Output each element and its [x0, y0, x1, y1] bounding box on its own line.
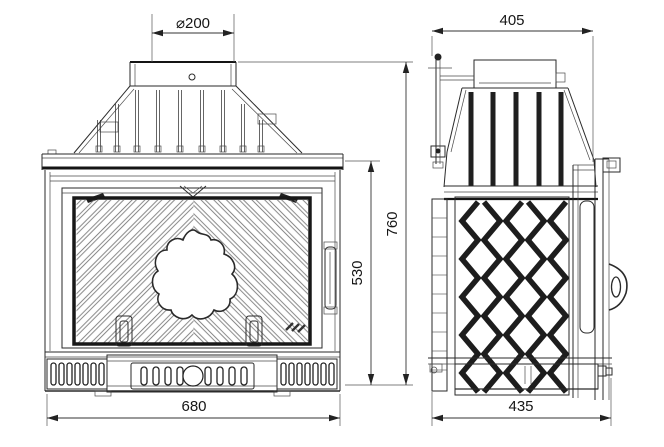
dim-label-530: 530 — [349, 260, 366, 285]
hood-fins-side — [471, 92, 561, 186]
collar-bolt-hole — [189, 74, 195, 80]
dim-height-530: 530 — [345, 161, 380, 385]
dim-label-680: 680 — [181, 398, 206, 415]
flue-collar-front — [130, 62, 236, 86]
dim-label-405: 405 — [499, 12, 524, 29]
dim-label-435: 435 — [508, 398, 533, 415]
air-control-knob — [183, 366, 203, 386]
door-latch-side — [603, 158, 620, 172]
hood-side — [444, 88, 598, 199]
dim-flue-diameter: ⌀200 — [152, 14, 234, 62]
dim-label-760: 760 — [384, 211, 401, 236]
hood-front — [74, 86, 302, 153]
technical-drawing-canvas: ⌀200 405 760 530 680 435 — [0, 0, 664, 447]
flue-collar-side — [474, 60, 565, 88]
side-view — [428, 54, 627, 401]
hood-step-right — [258, 114, 276, 124]
pedestal-side — [455, 364, 598, 389]
vent-grille-right — [277, 359, 337, 389]
vent-grille-left — [47, 359, 107, 389]
base-side — [428, 358, 612, 389]
damper-knob — [435, 54, 442, 61]
hood-ribs — [96, 90, 264, 152]
hinge-column-segments — [432, 218, 447, 370]
door-handle-side — [609, 264, 627, 310]
dim-label-flue-diameter: ⌀200 — [176, 15, 210, 32]
door-edge-panel — [580, 201, 594, 333]
control-panel — [107, 355, 277, 392]
front-view — [42, 62, 343, 396]
firebox-front — [45, 170, 340, 352]
dim-depth-435: 435 — [432, 378, 611, 426]
top-band-front — [42, 150, 343, 170]
base-front — [45, 352, 340, 396]
dim-width-680: 680 — [47, 394, 340, 426]
drawing-svg: ⌀200 405 760 530 680 435 — [0, 0, 664, 447]
dim-width-405: 405 — [432, 12, 593, 162]
